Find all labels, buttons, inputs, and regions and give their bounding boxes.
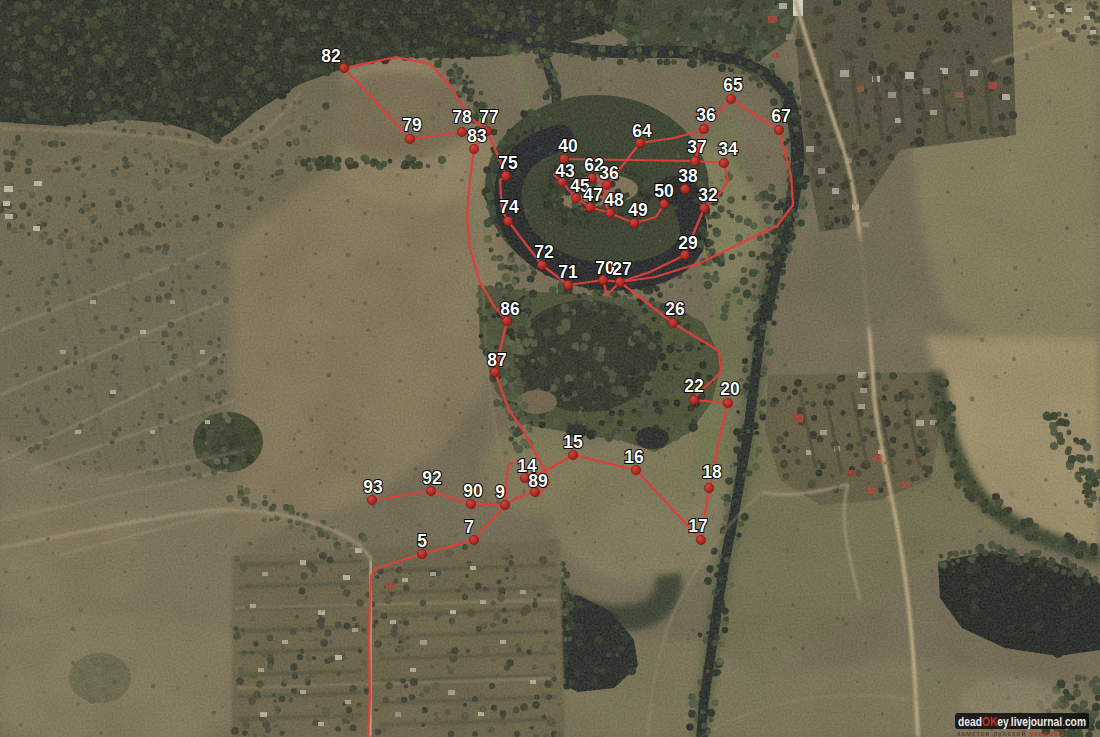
svg-text:36: 36 — [696, 105, 716, 125]
svg-text:40: 40 — [558, 136, 578, 156]
svg-text:78: 78 — [452, 107, 472, 127]
svg-text:49: 49 — [628, 200, 648, 220]
svg-text:9: 9 — [495, 482, 505, 502]
svg-text:82: 82 — [321, 46, 341, 66]
svg-text:75: 75 — [498, 153, 518, 173]
svg-text:86: 86 — [500, 299, 520, 319]
svg-text:93: 93 — [363, 477, 383, 497]
svg-text:87: 87 — [487, 350, 506, 370]
svg-text:47: 47 — [583, 185, 602, 205]
svg-text:26: 26 — [665, 299, 685, 319]
svg-text:32: 32 — [698, 185, 718, 205]
svg-text:65: 65 — [723, 75, 743, 95]
svg-text:deadOKey.livejournal.com: deadOKey.livejournal.com — [958, 714, 1086, 729]
svg-text:38: 38 — [678, 166, 698, 186]
svg-text:18: 18 — [702, 462, 722, 482]
svg-text:71: 71 — [558, 262, 578, 282]
svg-text:48: 48 — [604, 190, 624, 210]
svg-text:50: 50 — [654, 181, 674, 201]
svg-text:83: 83 — [467, 126, 487, 146]
svg-text:29: 29 — [678, 233, 698, 253]
svg-text:67: 67 — [771, 106, 790, 126]
svg-text:заметки русской усадьбы: заметки русской усадьбы — [957, 730, 1066, 737]
svg-text:5: 5 — [417, 531, 427, 551]
svg-text:77: 77 — [479, 107, 498, 127]
svg-text:90: 90 — [463, 481, 483, 501]
svg-text:22: 22 — [684, 376, 704, 396]
svg-text:72: 72 — [534, 242, 554, 262]
svg-text:74: 74 — [499, 197, 519, 217]
svg-text:15: 15 — [563, 432, 583, 452]
svg-text:79: 79 — [402, 115, 422, 135]
svg-text:20: 20 — [720, 379, 740, 399]
svg-text:92: 92 — [422, 468, 442, 488]
svg-text:27: 27 — [612, 259, 631, 279]
svg-text:7: 7 — [464, 517, 474, 537]
svg-text:89: 89 — [528, 471, 548, 491]
svg-text:16: 16 — [624, 447, 644, 467]
svg-text:34: 34 — [718, 139, 738, 159]
svg-text:64: 64 — [632, 121, 652, 141]
svg-text:37: 37 — [687, 137, 706, 157]
svg-text:17: 17 — [688, 516, 707, 536]
svg-text:36: 36 — [599, 163, 619, 183]
